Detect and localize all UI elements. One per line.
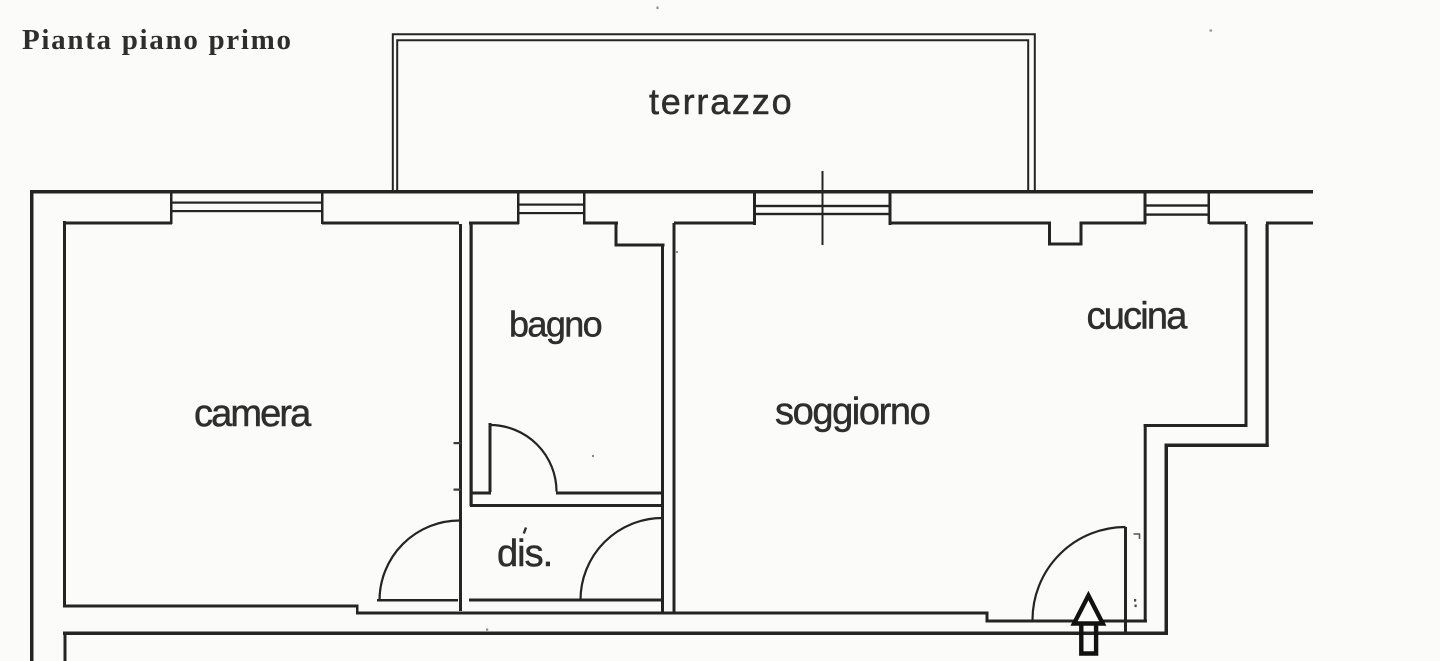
- svg-text:terrazzo: terrazzo: [649, 81, 793, 122]
- svg-text:soggiorno: soggiorno: [775, 391, 930, 433]
- svg-text:Pianta piano primo: Pianta piano primo: [22, 24, 293, 56]
- svg-text:camera: camera: [194, 393, 312, 435]
- svg-text:dis.: dis.: [497, 533, 552, 575]
- svg-text:cucina: cucina: [1087, 296, 1189, 338]
- svg-text:bagno: bagno: [509, 304, 602, 345]
